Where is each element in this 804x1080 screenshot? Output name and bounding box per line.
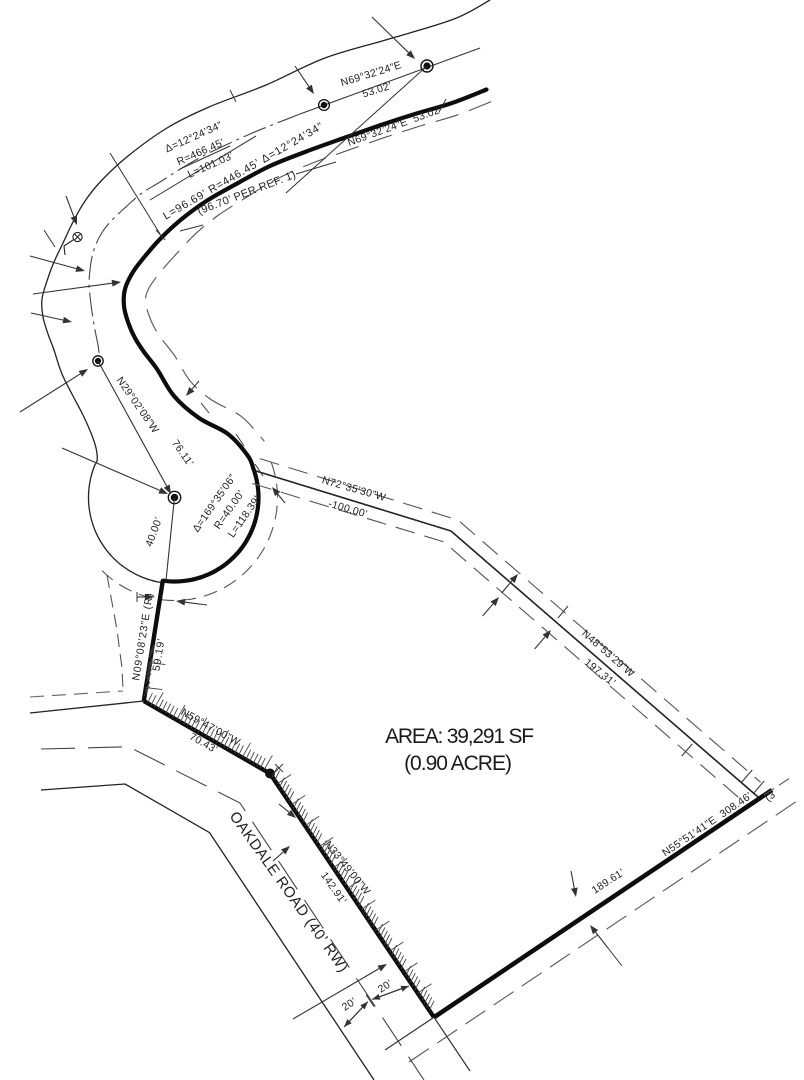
svg-text:AREA: 39,291 SF: AREA: 39,291 SF: [385, 725, 533, 748]
svg-text:(0.90 ACRE): (0.90 ACRE): [404, 752, 511, 775]
